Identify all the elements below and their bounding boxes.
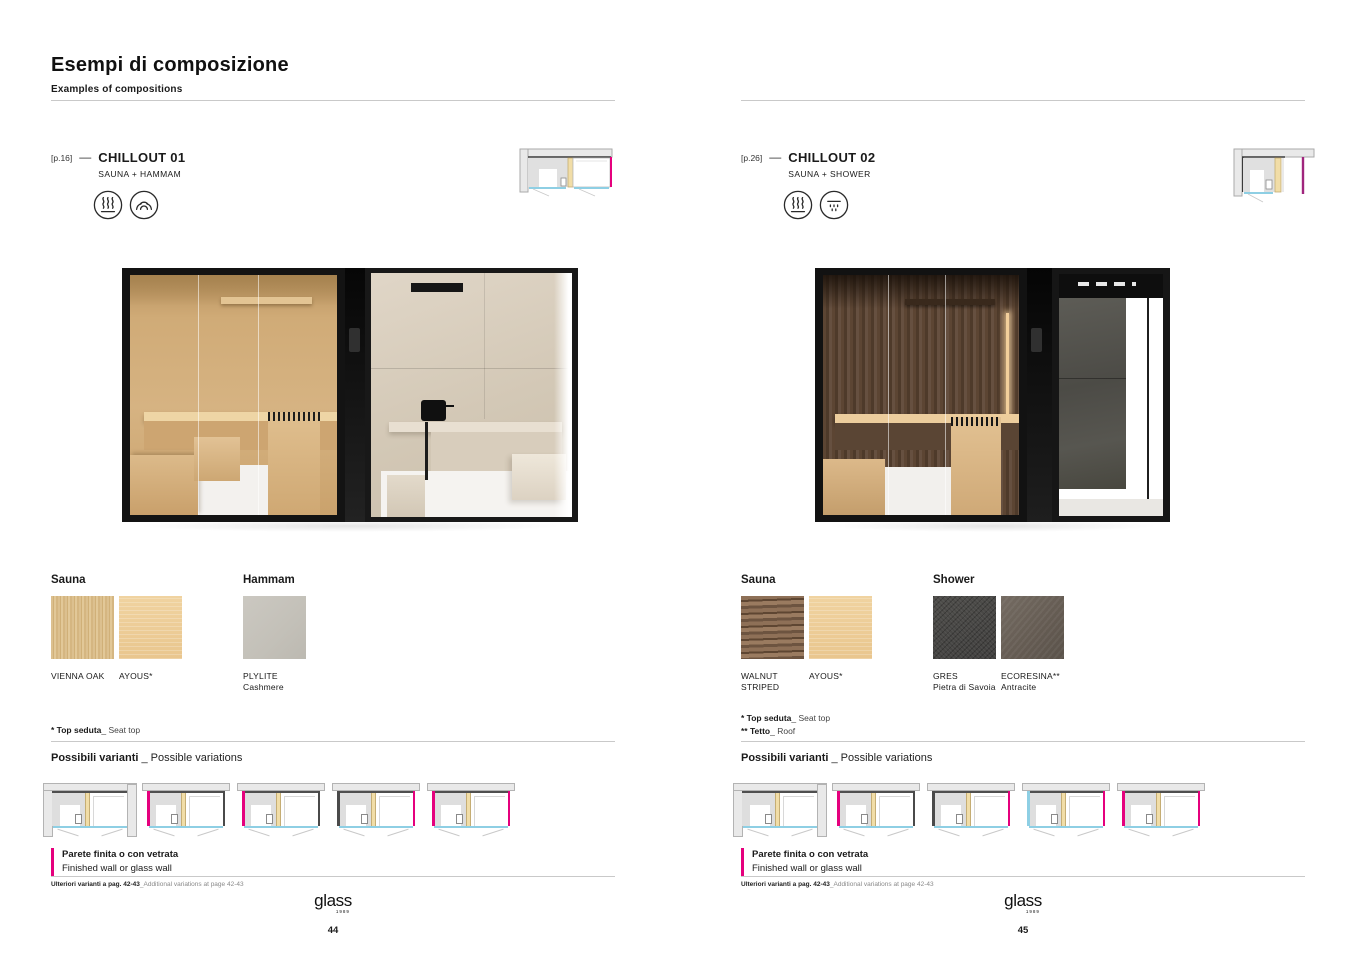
product-title-block: CHILLOUT 01 SAUNA + HAMMAM [98,150,185,179]
dash: — [769,150,781,164]
product-header: [p.16] — CHILLOUT 01 SAUNA + HAMMAM [51,150,185,179]
chillout02-render [815,268,1170,522]
material-swatch [1001,596,1064,659]
materials-group-hammam: Hammam PLYLITE Cashmere [243,574,306,694]
hammam-cabin-render [365,268,578,522]
sauna-cabin-render [815,268,1027,522]
sauna-cabin-render [122,268,345,522]
catalog-page-left: Esempi di composizione Examples of compo… [51,0,615,958]
divider [51,100,615,101]
material-swatch [741,596,804,659]
material-item: AYOUS* [119,596,182,682]
variants-row [51,783,615,843]
legend-line-it: Parete finita o con vetrata [752,848,868,862]
materials-group-sauna: Sauna WALNUT STRIPED AYOUS* [741,574,872,694]
floorplan-thumbnail [519,146,623,198]
variant-floorplan [432,783,510,841]
variant-floorplan [932,783,1010,841]
control-panel [1031,328,1042,352]
legend: Parete finita o con vetrata Finished wal… [51,848,178,876]
catalog-spread: Esempi di composizione Examples of compo… [0,0,1355,958]
legend: Parete finita o con vetrata Finished wal… [741,848,868,876]
product-title-block: CHILLOUT 02 SAUNA + SHOWER [788,150,875,179]
material-swatch [51,596,114,659]
variant-floorplan [1027,783,1105,841]
variant-floorplan [741,783,819,841]
page-number: 44 [51,925,615,936]
footnotes: * Top seduta_ Seat top [51,724,140,737]
product-type: SAUNA + HAMMAM [98,169,185,179]
materials-group-sauna: Sauna VIENNA OAK AYOUS* [51,574,182,682]
page-number: 45 [741,925,1305,936]
catalog-page-right: [p.26] — CHILLOUT 02 SAUNA + SHOWER [741,0,1305,958]
variant-floorplan [242,783,320,841]
material-swatch [933,596,996,659]
product-name: CHILLOUT 01 [98,150,185,165]
shower-cabin-render [1052,268,1170,522]
variants-note: Ulteriori varianti a pag. 42-43_Addition… [741,881,934,888]
material-item: AYOUS* [809,596,872,694]
footnote: * Top seduta_ Seat top [51,724,140,737]
page-footer: glass 1989 45 [741,892,1305,936]
footnote: * Top seduta_ Seat top [741,712,830,725]
frame-post [345,268,365,522]
divider [741,876,1305,877]
material-label: AYOUS* [809,671,872,682]
material-item: ECORESINA** Antracite [1001,596,1064,694]
chillout01-render [122,268,578,522]
variant-floorplan [337,783,415,841]
product-header: [p.26] — CHILLOUT 02 SAUNA + SHOWER [741,150,875,179]
material-item: GRES Pietra di Savoia [933,596,996,694]
glass-logo: glass 1989 [314,892,352,915]
footnote: ** Tetto_ Roof [741,725,830,738]
page-footer: glass 1989 44 [51,892,615,936]
material-label: VIENNA OAK [51,671,114,682]
divider [741,741,1305,742]
divider [51,741,615,742]
dash: — [79,150,91,164]
divider [741,100,1305,101]
materials-group-shower: Shower GRES Pietra di Savoia ECORESINA**… [933,574,1064,694]
variant-floorplan [147,783,225,841]
feature-icons [92,189,160,221]
material-item: WALNUT STRIPED [741,596,804,694]
page-subtitle: Examples of compositions [51,84,289,95]
variant-floorplan [51,783,129,841]
legend-line-en: Finished wall or glass wall [752,862,868,876]
feature-icons [782,189,850,221]
product-type: SAUNA + SHOWER [788,169,875,179]
materials-group-title: Sauna [741,574,872,586]
sauna-heat-icon [782,189,814,221]
page-title: Esempi di composizione [51,54,289,77]
legend-line-en: Finished wall or glass wall [62,862,178,876]
variants-title: Possibili varianti _ Possible variations [51,752,242,764]
product-page-ref: [p.26] [741,153,762,163]
frame-post [1027,268,1052,522]
glass-logo: glass 1989 [1004,892,1042,915]
material-label: ECORESINA** Antracite [1001,671,1064,694]
material-swatch [243,596,306,659]
materials-group-title: Shower [933,574,1064,586]
sauna-heat-icon [92,189,124,221]
product-name: CHILLOUT 02 [788,150,875,165]
material-swatch [809,596,872,659]
material-swatch [119,596,182,659]
material-label: GRES Pietra di Savoia [933,671,996,694]
variants-note: Ulteriori varianti a pag. 42-43_Addition… [51,881,244,888]
material-label: WALNUT STRIPED [741,671,804,694]
variants-row [741,783,1305,843]
material-label: PLYLITE Cashmere [243,671,306,694]
shower-drops-icon [818,189,850,221]
divider [51,876,615,877]
material-item: VIENNA OAK [51,596,114,682]
variant-floorplan [1122,783,1200,841]
footnotes: * Top seduta_ Seat top ** Tetto_ Roof [741,712,830,738]
hammam-steam-icon [128,189,160,221]
control-panel [349,328,360,352]
material-item: PLYLITE Cashmere [243,596,306,694]
materials-group-title: Sauna [51,574,182,586]
variants-title: Possibili varianti _ Possible variations [741,752,932,764]
material-label: AYOUS* [119,671,182,682]
materials-group-title: Hammam [243,574,306,586]
legend-line-it: Parete finita o con vetrata [62,848,178,862]
floorplan-thumbnail [1233,146,1315,204]
product-page-ref: [p.16] [51,153,72,163]
doc-header: Esempi di composizione Examples of compo… [51,54,289,95]
variant-floorplan [837,783,915,841]
